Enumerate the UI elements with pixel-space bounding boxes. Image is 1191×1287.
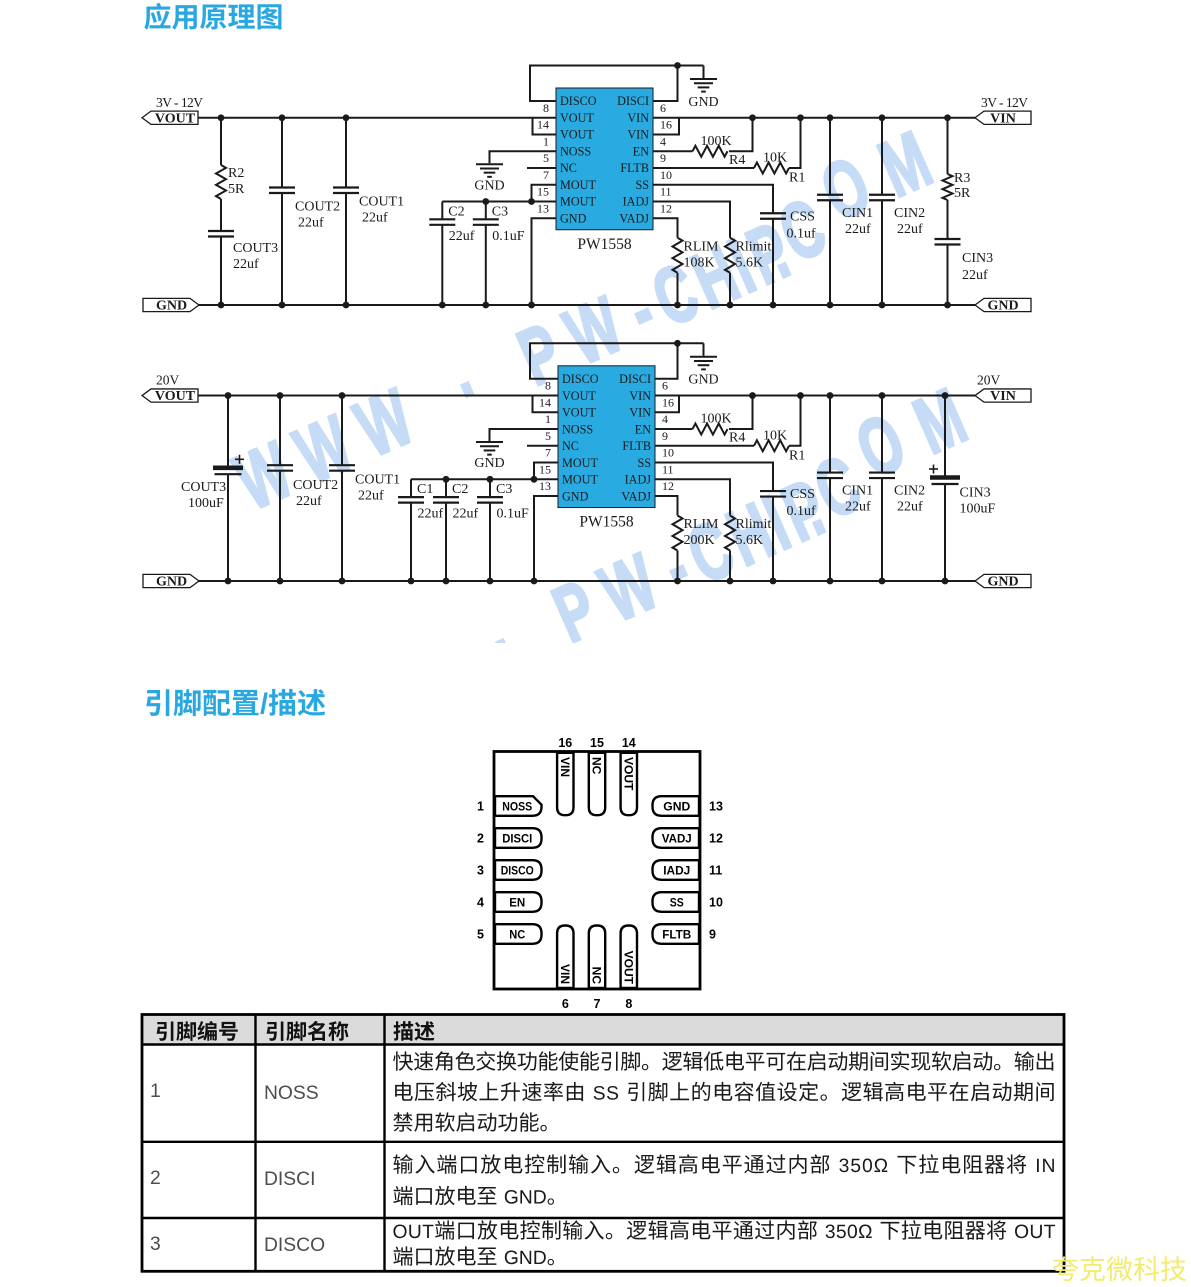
svg-text:CIN1: CIN1 [842, 206, 873, 221]
svg-text:VOUT: VOUT [562, 406, 596, 420]
svg-text:C2: C2 [452, 482, 468, 497]
svg-text:R2: R2 [228, 166, 244, 181]
svg-text:VIN: VIN [627, 128, 649, 142]
svg-text:DISCO: DISCO [264, 1235, 325, 1256]
svg-text:22uf: 22uf [845, 500, 871, 515]
svg-text:3: 3 [150, 1234, 161, 1255]
svg-text:10: 10 [709, 896, 723, 910]
svg-text:RLIM: RLIM [684, 517, 720, 532]
svg-text:22uf: 22uf [418, 507, 444, 522]
svg-text:VOUT: VOUT [622, 757, 636, 791]
svg-text:DISCI: DISCI [264, 1169, 315, 1190]
svg-text:22uf: 22uf [897, 500, 923, 515]
svg-text:IADJ: IADJ [625, 473, 652, 487]
svg-text:IADJ: IADJ [663, 863, 690, 877]
svg-text:C2: C2 [448, 204, 464, 219]
svg-text:7: 7 [545, 446, 551, 460]
svg-text:VOUT: VOUT [155, 389, 196, 404]
svg-text:100uF: 100uF [188, 496, 224, 511]
svg-text:20V: 20V [977, 373, 1001, 388]
svg-text:NOSS: NOSS [560, 144, 591, 158]
svg-text:DISCO: DISCO [562, 372, 599, 386]
svg-text:100K: 100K [700, 412, 731, 427]
svg-text:4: 4 [660, 134, 666, 148]
svg-text:NOSS: NOSS [502, 799, 532, 813]
svg-text:1: 1 [477, 800, 484, 814]
svg-text:0.1uF: 0.1uF [497, 507, 530, 522]
svg-text:0.1uF: 0.1uF [492, 229, 525, 244]
svg-text:VADJ: VADJ [662, 831, 692, 845]
svg-text:W: W [589, 538, 670, 639]
svg-text:1: 1 [543, 134, 549, 148]
svg-text:R4: R4 [729, 153, 745, 168]
svg-text:MOUT: MOUT [562, 473, 598, 487]
svg-text:3: 3 [477, 864, 484, 878]
svg-text:200K: 200K [684, 533, 715, 548]
svg-text:5: 5 [477, 928, 484, 942]
svg-text:8: 8 [625, 997, 632, 1011]
svg-text:16: 16 [558, 736, 572, 750]
svg-text:13: 13 [709, 800, 723, 814]
svg-text:COUT1: COUT1 [355, 473, 400, 488]
svg-text:C1: C1 [417, 482, 433, 497]
svg-text:Rlimit: Rlimit [736, 239, 772, 254]
svg-text:20V: 20V [156, 373, 180, 388]
svg-text:16: 16 [660, 118, 672, 132]
svg-text:VIN: VIN [629, 406, 651, 420]
svg-text:4: 4 [662, 412, 668, 426]
svg-text:CIN2: CIN2 [894, 484, 925, 499]
svg-text:C3: C3 [492, 204, 508, 219]
svg-text:0.1uf: 0.1uf [787, 226, 817, 241]
svg-text:CIN3: CIN3 [960, 486, 991, 501]
svg-text:16: 16 [662, 395, 674, 409]
svg-text:11: 11 [660, 185, 672, 199]
svg-text:14: 14 [537, 118, 549, 132]
svg-text:EN: EN [633, 144, 649, 158]
svg-text:5R: 5R [954, 186, 971, 201]
svg-text:22uf: 22uf [962, 268, 988, 283]
svg-text:NC: NC [590, 967, 604, 985]
svg-text:GND: GND [560, 211, 587, 225]
svg-text:7: 7 [594, 997, 601, 1011]
svg-text:VIN: VIN [990, 389, 1016, 404]
svg-text:3V - 12V: 3V - 12V [981, 95, 1028, 110]
svg-text:PW1558: PW1558 [577, 236, 632, 253]
svg-text:GND: GND [663, 799, 690, 813]
svg-text:SS: SS [635, 178, 649, 192]
svg-text:5: 5 [543, 151, 549, 165]
svg-text:W: W [319, 657, 400, 758]
svg-text:22uf: 22uf [298, 216, 324, 231]
svg-text:NOSS: NOSS [562, 422, 593, 436]
svg-text:8: 8 [545, 379, 551, 393]
svg-text:5R: 5R [228, 182, 245, 197]
svg-text:1: 1 [150, 1081, 161, 1102]
svg-text:22uf: 22uf [897, 222, 923, 237]
svg-text:VIN: VIN [990, 111, 1016, 126]
svg-text:VOUT: VOUT [560, 111, 594, 125]
svg-text:DISCI: DISCI [502, 831, 532, 845]
svg-text:VOUT: VOUT [560, 128, 594, 142]
svg-text:GND: GND [688, 373, 718, 388]
svg-text:2: 2 [150, 1168, 161, 1189]
svg-text:PW1558: PW1558 [579, 514, 634, 531]
svg-text:.: . [435, 327, 484, 414]
svg-text:8: 8 [543, 101, 549, 115]
svg-text:2: 2 [477, 832, 484, 846]
svg-text:15: 15 [539, 462, 551, 476]
svg-text:VADJ: VADJ [621, 489, 651, 503]
svg-text:9: 9 [660, 151, 666, 165]
svg-text:VOUT: VOUT [562, 389, 596, 403]
svg-text:FLTB: FLTB [622, 439, 651, 453]
svg-text:100K: 100K [700, 134, 731, 149]
svg-text:9: 9 [709, 928, 716, 942]
svg-text:22uf: 22uf [233, 257, 259, 272]
svg-text:R3: R3 [954, 171, 970, 186]
svg-text:22uf: 22uf [296, 494, 322, 509]
svg-text:DISCO: DISCO [501, 863, 534, 877]
svg-text:NC: NC [509, 927, 525, 941]
svg-text:GND: GND [156, 299, 187, 314]
svg-text:.: . [470, 584, 519, 671]
svg-text:M: M [903, 372, 979, 471]
svg-text:3V - 12V: 3V - 12V [156, 95, 203, 110]
svg-text:22uf: 22uf [358, 489, 384, 504]
svg-text:MOUT: MOUT [560, 178, 596, 192]
svg-text:108K: 108K [684, 255, 715, 270]
svg-text:NC: NC [590, 757, 604, 775]
svg-text:GND: GND [474, 178, 504, 193]
svg-text:5.6K: 5.6K [736, 533, 764, 548]
svg-text:10: 10 [662, 446, 674, 460]
svg-text:0.1uf: 0.1uf [787, 504, 817, 519]
svg-text:W: W [259, 683, 340, 784]
svg-text:COUT3: COUT3 [233, 241, 278, 256]
svg-text:10K: 10K [763, 428, 787, 443]
svg-text:W: W [379, 630, 460, 731]
svg-text:GND: GND [156, 575, 187, 590]
svg-text:GND: GND [688, 95, 718, 110]
svg-text:EN: EN [509, 895, 525, 909]
svg-text:R4: R4 [729, 431, 745, 446]
svg-text:5.6K: 5.6K [736, 255, 764, 270]
svg-text:VIN: VIN [558, 964, 572, 984]
svg-text:5: 5 [545, 429, 551, 443]
svg-text:R1: R1 [789, 171, 805, 186]
svg-text:12: 12 [709, 832, 723, 846]
svg-text:CSS: CSS [790, 487, 815, 502]
svg-text:6: 6 [662, 379, 668, 393]
svg-text:13: 13 [539, 479, 551, 493]
svg-text:W: W [344, 373, 425, 474]
svg-text:13: 13 [537, 201, 549, 215]
svg-text:6: 6 [660, 101, 666, 115]
svg-text:100uF: 100uF [960, 502, 996, 517]
svg-text:11: 11 [662, 462, 674, 476]
svg-text:4: 4 [477, 896, 484, 910]
svg-text:CSS: CSS [790, 209, 815, 224]
svg-text:SS: SS [670, 895, 684, 909]
svg-text:22uf: 22uf [453, 507, 479, 522]
svg-text:MOUT: MOUT [562, 456, 598, 470]
svg-text:GND: GND [987, 575, 1018, 590]
svg-text:IADJ: IADJ [623, 195, 650, 209]
svg-text:7: 7 [543, 168, 549, 182]
svg-text:MOUT: MOUT [560, 195, 596, 209]
svg-text:DISCI: DISCI [619, 372, 651, 386]
svg-text:C3: C3 [496, 482, 512, 497]
svg-text:6: 6 [562, 997, 569, 1011]
svg-text:15: 15 [537, 185, 549, 199]
svg-text:RLIM: RLIM [684, 239, 720, 254]
svg-text:10: 10 [660, 168, 672, 182]
svg-text:FLTB: FLTB [620, 161, 649, 175]
svg-text:12: 12 [660, 201, 672, 215]
svg-text:DISCO: DISCO [560, 94, 597, 108]
svg-text:VOUT: VOUT [622, 951, 636, 985]
svg-text:SS: SS [637, 456, 651, 470]
svg-text:Rlimit: Rlimit [736, 517, 772, 532]
svg-text:22uf: 22uf [362, 211, 388, 226]
svg-text:9: 9 [662, 429, 668, 443]
svg-text:10K: 10K [763, 151, 787, 166]
svg-text:GND: GND [987, 299, 1018, 314]
svg-text:COUT2: COUT2 [293, 478, 338, 493]
svg-text:EN: EN [635, 422, 651, 436]
svg-text:1: 1 [545, 412, 551, 426]
svg-text:NC: NC [560, 161, 577, 175]
svg-text:COUT1: COUT1 [359, 195, 404, 210]
svg-text:CIN3: CIN3 [962, 251, 993, 266]
svg-text:COUT3: COUT3 [181, 480, 226, 495]
svg-text:11: 11 [709, 864, 722, 878]
svg-text:GND: GND [562, 489, 589, 503]
svg-text:CIN2: CIN2 [894, 206, 925, 221]
svg-text:VIN: VIN [629, 389, 651, 403]
svg-text:FLTB: FLTB [662, 927, 691, 941]
svg-text:12: 12 [662, 479, 674, 493]
svg-text:22uf: 22uf [449, 229, 475, 244]
svg-text:R1: R1 [789, 448, 805, 463]
svg-text:DISCI: DISCI [617, 94, 649, 108]
svg-text:VOUT: VOUT [155, 111, 196, 126]
svg-text:GND: GND [474, 456, 504, 471]
svg-text:NOSS: NOSS [264, 1083, 319, 1104]
svg-text:CIN1: CIN1 [842, 484, 873, 499]
svg-text:VIN: VIN [627, 111, 649, 125]
svg-text:14: 14 [622, 736, 636, 750]
svg-text:NC: NC [562, 439, 579, 453]
svg-text:VIN: VIN [558, 757, 572, 777]
svg-text:COUT2: COUT2 [295, 200, 340, 215]
svg-text:22uf: 22uf [845, 222, 871, 237]
svg-text:14: 14 [539, 395, 551, 409]
svg-text:15: 15 [590, 736, 604, 750]
svg-text:VADJ: VADJ [619, 211, 649, 225]
